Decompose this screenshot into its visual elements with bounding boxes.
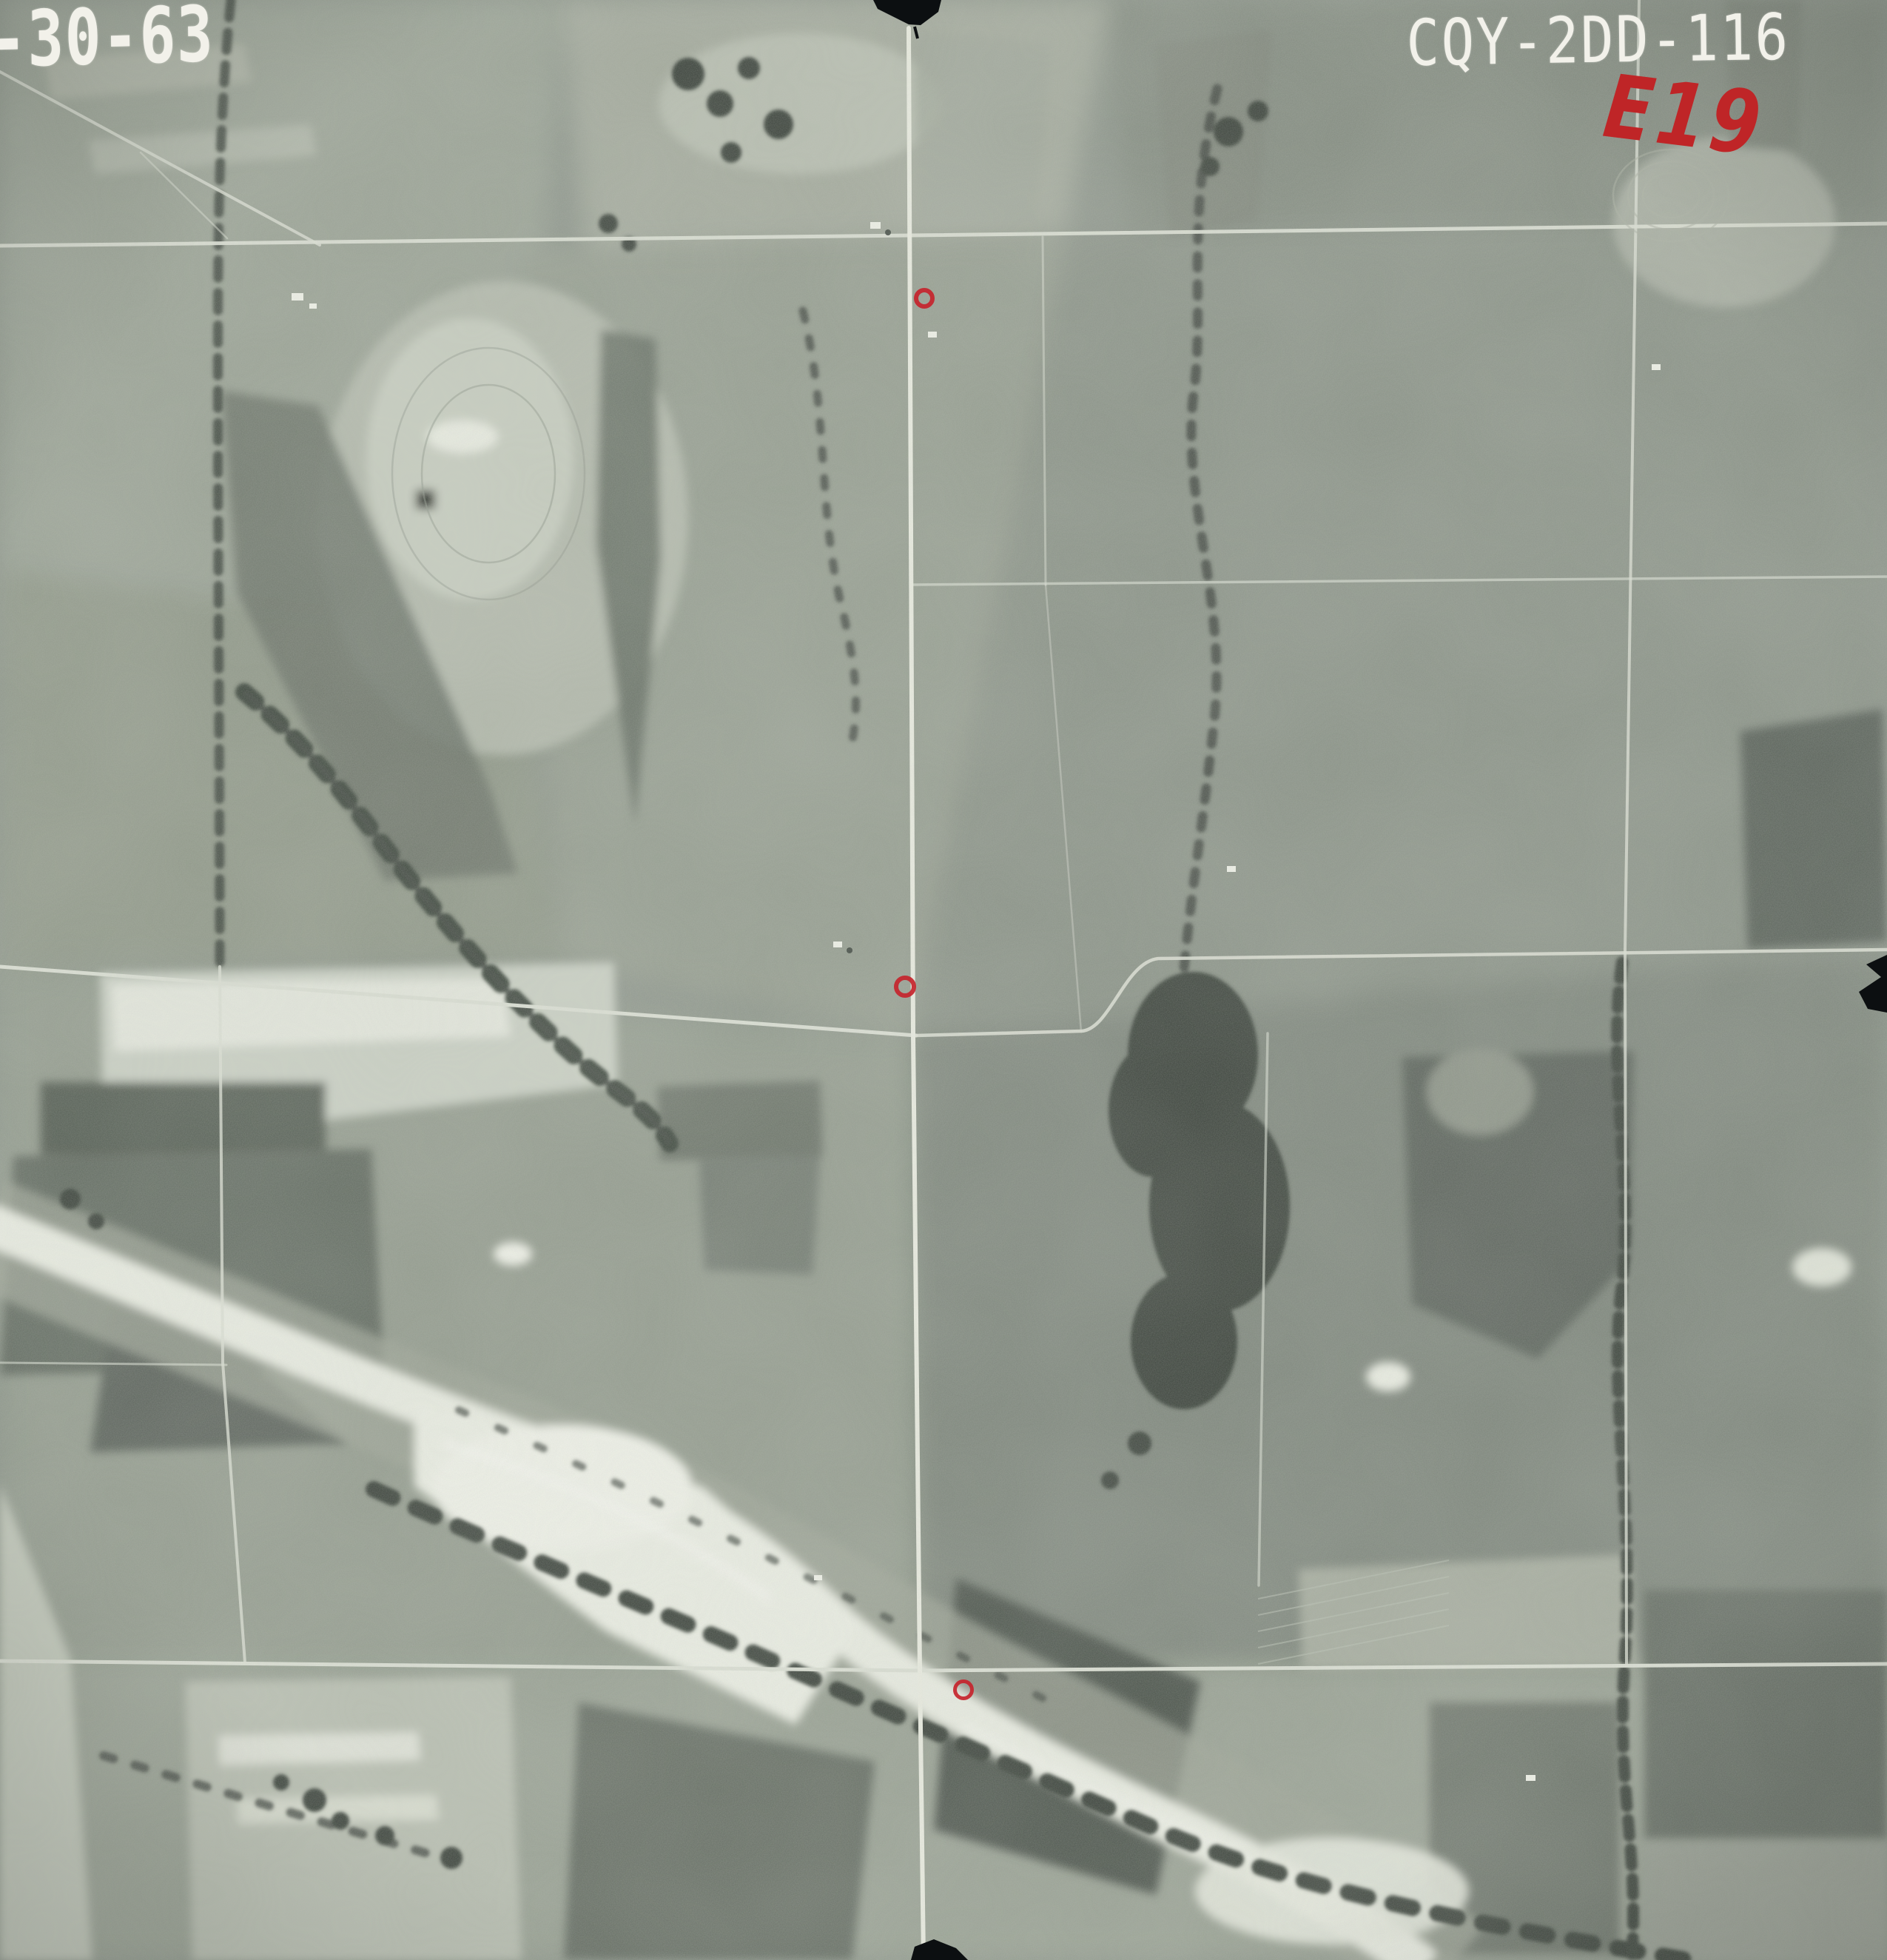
- red-circle-marker-2: [894, 976, 916, 998]
- red-circle-marker-3: [953, 1679, 974, 1700]
- aerial-photograph: -30-63 CQY-2DD-116 E19: [0, 0, 1887, 1960]
- vignette-overlay: [0, 0, 1887, 1960]
- handwritten-index-label: E19: [1600, 62, 1769, 168]
- date-code-label: -30-63: [0, 0, 215, 78]
- terrain-artwork: [0, 0, 1887, 1960]
- photo-id-label: CQY-2DD-116: [1406, 6, 1790, 75]
- red-circle-marker-1: [914, 288, 935, 309]
